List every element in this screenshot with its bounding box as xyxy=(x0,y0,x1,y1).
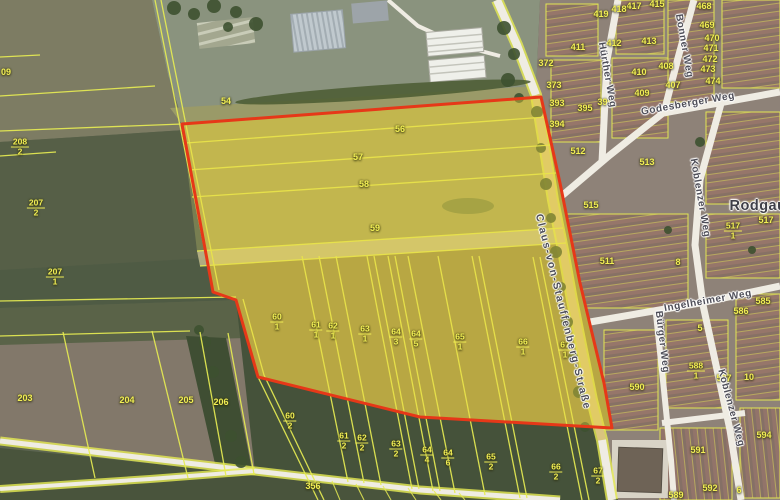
aerial-basemap xyxy=(0,0,780,500)
gray-building xyxy=(351,0,389,23)
large-building-roof xyxy=(617,447,663,493)
factory-building xyxy=(291,10,346,52)
map-viewport[interactable]: 0954565758592032042052063563723733933943… xyxy=(0,0,780,500)
